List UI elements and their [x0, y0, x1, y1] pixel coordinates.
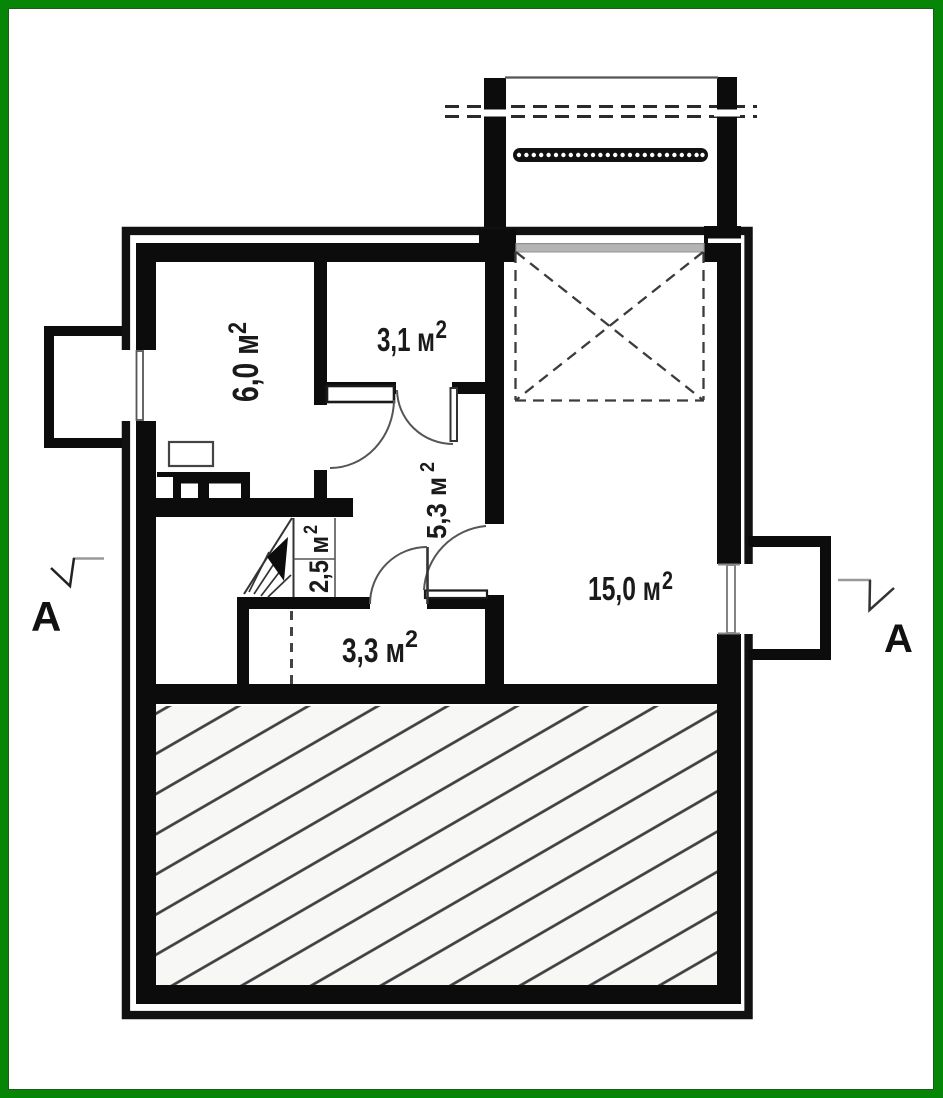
svg-text:A: A [31, 593, 61, 640]
svg-text:15,0 м: 15,0 м [588, 570, 661, 607]
svg-text:6,0 м: 6,0 м [225, 334, 266, 402]
svg-text:2: 2 [436, 316, 448, 344]
svg-text:5,3 м: 5,3 м [421, 477, 452, 539]
svg-text:3,1 м: 3,1 м [377, 321, 435, 358]
svg-text:3,3 м: 3,3 м [342, 632, 405, 670]
svg-text:2: 2 [662, 567, 673, 595]
svg-text:2: 2 [417, 462, 439, 472]
svg-text:2: 2 [405, 626, 418, 653]
svg-text:2: 2 [224, 322, 252, 334]
svg-text:2: 2 [301, 525, 322, 534]
svg-text:2,5 м: 2,5 м [304, 536, 334, 593]
svg-text:A: A [884, 617, 913, 661]
